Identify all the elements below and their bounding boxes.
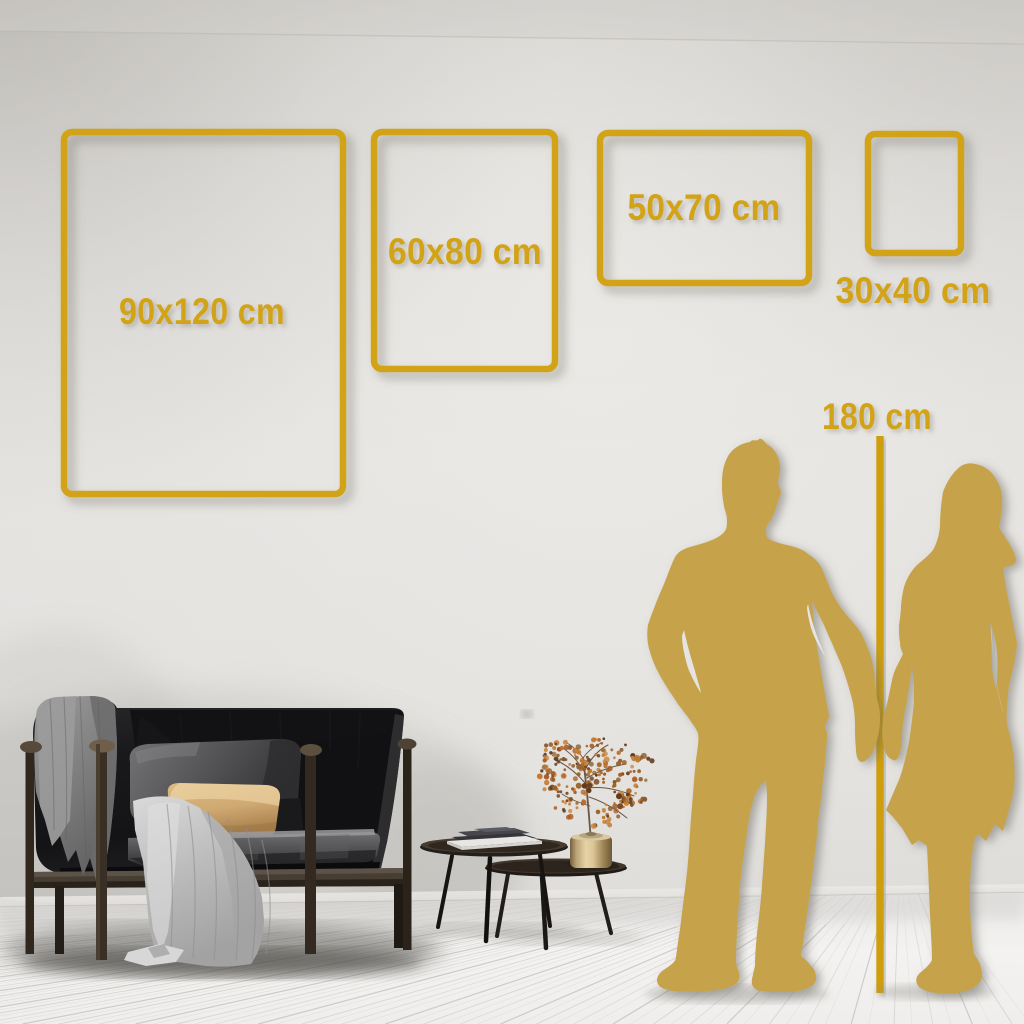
svg-text:50x70 cm: 50x70 cm — [628, 187, 781, 228]
svg-text:60x80 cm: 60x80 cm — [388, 231, 542, 272]
svg-text:30x40 cm: 30x40 cm — [836, 270, 991, 311]
svg-text:180 cm: 180 cm — [822, 396, 932, 437]
svg-text:90x120 cm: 90x120 cm — [119, 291, 285, 332]
